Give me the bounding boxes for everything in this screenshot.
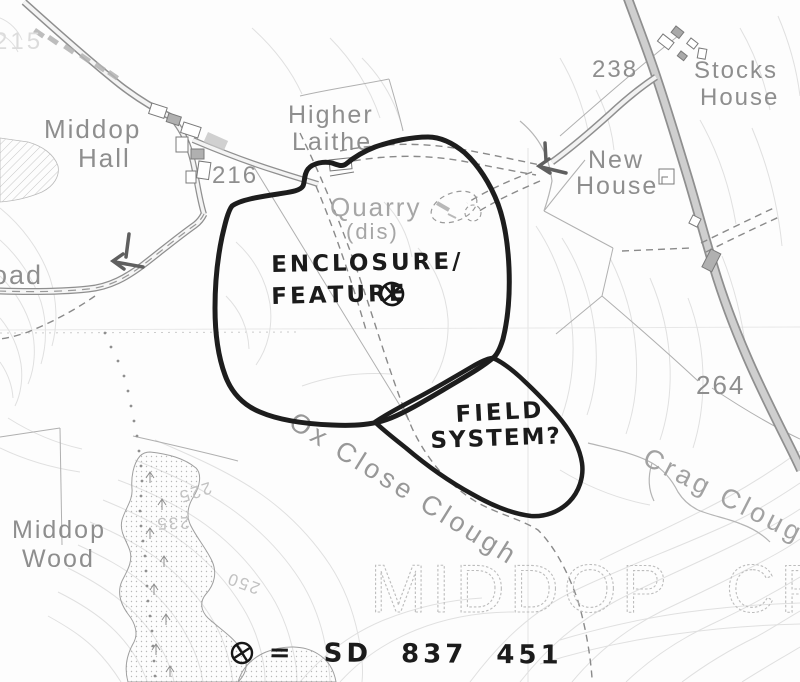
grid-reference-legend: = SD 837 451 (227, 638, 563, 668)
location-arrow-icon-west (113, 234, 143, 269)
grid-reference-text: = SD 837 451 (269, 638, 563, 671)
annotation-enclosure-line1: ENCLOSURE/ (271, 249, 464, 278)
annotation-field-line1: FIELD (455, 397, 545, 428)
annotation-enclosure-line2: FEATURE (271, 280, 408, 310)
location-arrow-icon-new-house (539, 143, 566, 173)
map-page: MIDDOP CP 215 Middop Hall 216 Higher Lai… (0, 0, 800, 682)
annotation-field-line2: SYSTEM? (430, 423, 562, 454)
hand-drawn-layer (0, 0, 800, 682)
target-symbol-legend-icon (227, 638, 257, 668)
